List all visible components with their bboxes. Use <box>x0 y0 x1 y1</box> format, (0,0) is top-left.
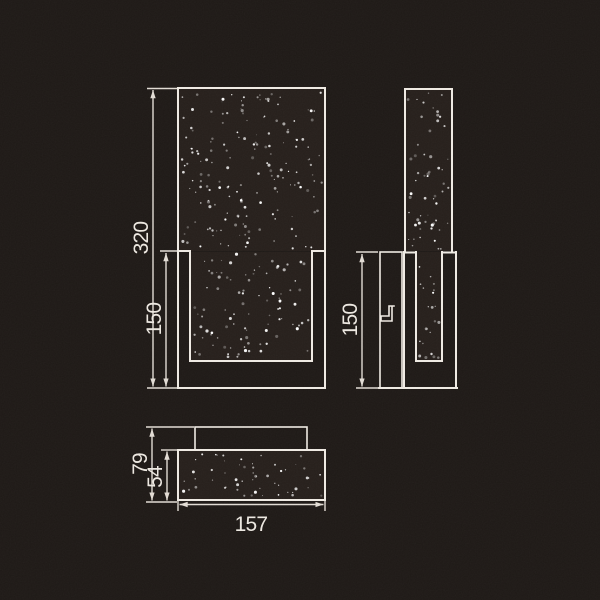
film-grain-overlay <box>0 0 600 600</box>
drawing-canvas: 320 150 150 <box>0 0 600 600</box>
technical-drawing: 320 150 150 <box>0 0 600 600</box>
